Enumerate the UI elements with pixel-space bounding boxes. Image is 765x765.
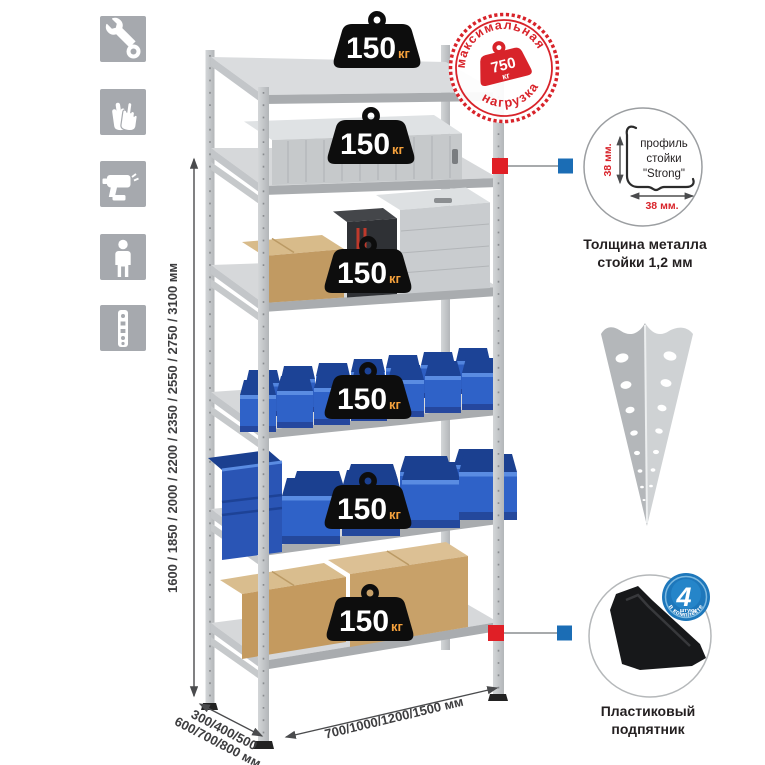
- profile-label-1: профиль: [640, 138, 688, 150]
- profile-label-3: "Strong": [643, 168, 685, 180]
- profile-caption-line1: Толщина металла: [555, 236, 735, 254]
- shelving-scene: 150кг 150кг 150кг 150кг 150кг 150кг макс…: [0, 0, 765, 765]
- svg-text:кг: кг: [391, 619, 404, 634]
- svg-text:кг: кг: [392, 142, 405, 157]
- svg-text:кг: кг: [389, 397, 402, 412]
- load-badges: 150кг 150кг 150кг 150кг 150кг 150кг: [325, 14, 421, 641]
- profile-dim-vertical: 38 мм.: [602, 143, 614, 176]
- svg-text:150: 150: [337, 383, 387, 416]
- profile-detail: 38 мм. 38 мм. профиль стойки "Strong": [584, 108, 702, 226]
- svg-text:150: 150: [337, 493, 387, 526]
- svg-text:кг: кг: [389, 507, 402, 522]
- load-value: 150: [346, 32, 396, 65]
- blue-container: [208, 450, 282, 560]
- product-infographic: 150кг 150кг 150кг 150кг 150кг 150кг макс…: [0, 0, 765, 765]
- svg-text:150: 150: [337, 257, 387, 290]
- svg-text:150: 150: [340, 128, 390, 161]
- foot-detail: 4 штуки в комплекте: [589, 573, 711, 697]
- callout-blue-square: [558, 159, 573, 174]
- foot-caption-line1: Пластиковый: [558, 703, 738, 721]
- svg-text:кг: кг: [389, 271, 402, 286]
- callout-blue-square: [557, 626, 572, 641]
- callout-foot: [488, 625, 572, 641]
- depth-dimension: 300/400/500 600/700/800 мм: [172, 701, 270, 765]
- foot-caption-line2: подпятник: [558, 721, 738, 739]
- width-dimension: 700/1000/1200/1500 мм: [286, 688, 497, 742]
- callout-red-square: [488, 625, 504, 641]
- width-dimension-label: 700/1000/1200/1500 мм: [323, 694, 465, 742]
- profile-caption: Толщина металла стойки 1,2 мм: [555, 236, 735, 272]
- angle-post-image: [601, 323, 693, 526]
- height-dimension: 1600 / 1850 / 2000 / 2200 / 2350 / 2550 …: [165, 159, 194, 696]
- load-unit: кг: [398, 46, 411, 61]
- max-load-stamp: максимальная нагрузка 750 кг: [437, 1, 570, 134]
- profile-caption-line2: стойки 1,2 мм: [555, 254, 735, 272]
- profile-label-2: стойки: [646, 153, 681, 165]
- height-dimension-label: 1600 / 1850 / 2000 / 2200 / 2350 / 2550 …: [165, 263, 180, 593]
- callout-red-square: [492, 158, 508, 174]
- callout-profile: [492, 158, 573, 174]
- profile-dim-horizontal: 38 мм.: [645, 200, 678, 212]
- svg-text:150: 150: [339, 605, 389, 638]
- foot-caption: Пластиковый подпятник: [558, 703, 738, 739]
- kit-badge: 4 штуки в комплекте: [662, 573, 710, 621]
